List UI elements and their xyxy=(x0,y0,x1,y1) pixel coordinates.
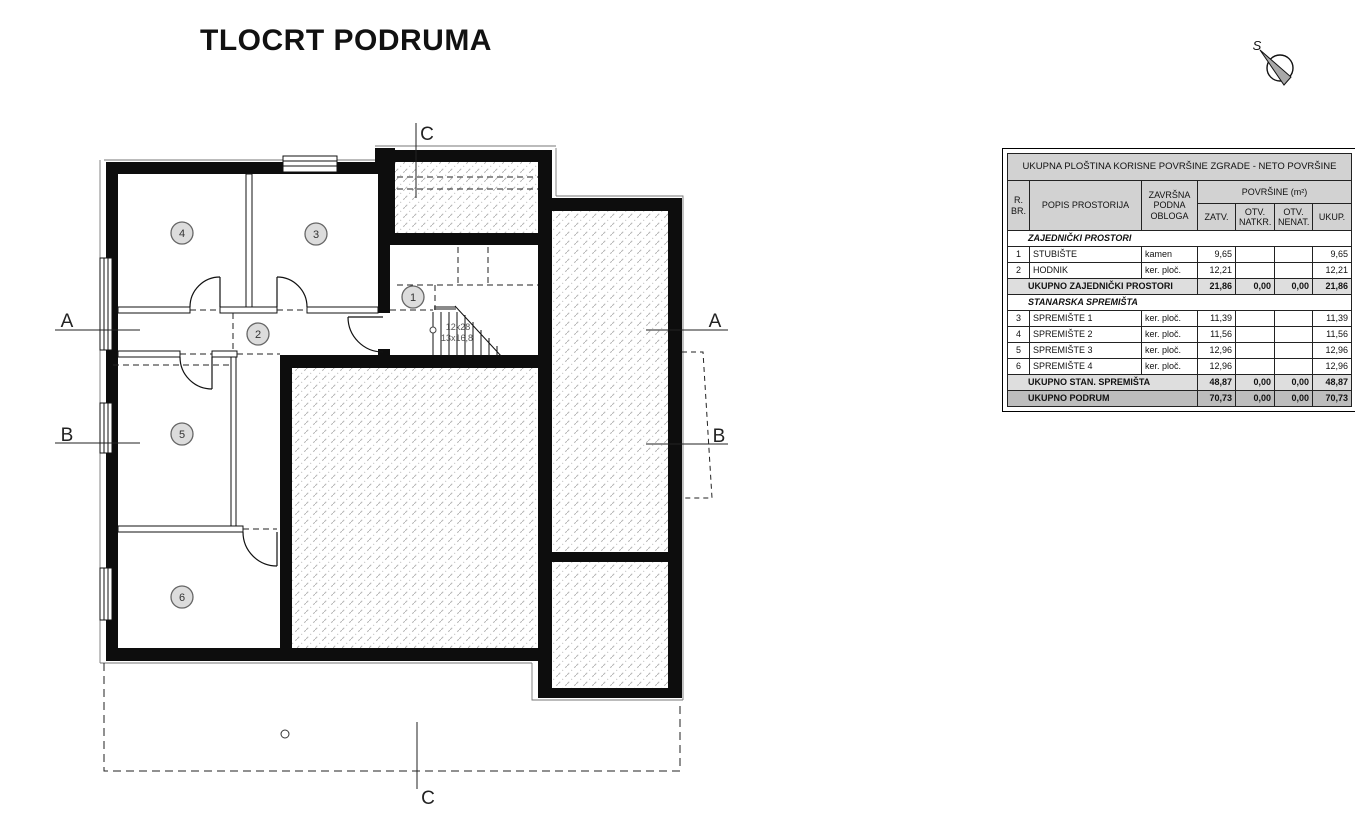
col-header-ukup: UKUP. xyxy=(1313,204,1352,231)
door-room5 xyxy=(180,357,212,389)
table-title: UKUPNA PLOŠTINA KORISNE POVRŠINE ZGRADE … xyxy=(1008,154,1352,181)
section-label-c-top: C xyxy=(420,124,434,145)
stair-landing-mark xyxy=(434,306,456,310)
window-left-1 xyxy=(100,258,112,350)
door-room4 xyxy=(190,277,220,307)
area-table: UKUPNA PLOŠTINA KORISNE POVRŠINE ZGRADE … xyxy=(1007,153,1352,407)
svg-text:6: 6 xyxy=(179,592,185,604)
stair-start-marker xyxy=(430,327,436,333)
room-marker-4: 4 xyxy=(171,222,193,244)
section-b-right-dashed xyxy=(682,352,712,498)
section-row: ZAJEDNIČKI PROSTORI xyxy=(1008,231,1352,247)
north-label: S xyxy=(1253,38,1262,53)
col-header-povrsine: POVRŠINE (m²) xyxy=(1198,181,1352,204)
table-row: 2 HODNIK ker. ploč. 12,21 12,21 xyxy=(1008,263,1352,279)
door-stair xyxy=(348,317,383,352)
drawing-sheet: TLOCRT PODRUMA xyxy=(0,0,1355,813)
door-room6 xyxy=(243,532,277,566)
right-hatch-lower xyxy=(552,562,668,688)
stair-note-2: 13x16,8 xyxy=(441,333,473,343)
ground-marker xyxy=(281,730,289,738)
table-row: 5 SPREMIŠTE 3 ker. ploč. 12,96 12,96 xyxy=(1008,343,1352,359)
window-left-3 xyxy=(100,568,112,620)
svg-text:4: 4 xyxy=(179,228,185,240)
col-header-zatv: ZATV. xyxy=(1198,204,1236,231)
svg-text:3: 3 xyxy=(313,229,319,241)
svg-text:2: 2 xyxy=(255,329,261,341)
north-arrow-icon: S xyxy=(1253,38,1293,85)
col-header-obloga: ZAVRŠNA PODNA OBLOGA xyxy=(1142,181,1198,231)
grand-total-row: UKUPNO PODRUM 70,73 0,00 0,00 70,73 xyxy=(1008,391,1352,407)
section-label-b-left: B xyxy=(61,425,74,446)
section-label-a-left: A xyxy=(61,311,74,332)
section-label-a-right: A xyxy=(709,311,722,332)
window-left-2 xyxy=(100,403,112,453)
col-header-natkr: OTV. NATKR. xyxy=(1236,204,1275,231)
table-row: 3 SPREMIŠTE 1 ker. ploč. 11,39 11,39 xyxy=(1008,311,1352,327)
right-hatch-upper xyxy=(552,211,668,552)
window-top xyxy=(283,156,337,172)
stair-note-1: 12x28 xyxy=(446,322,471,332)
room-marker-5: 5 xyxy=(171,423,193,445)
central-hatch xyxy=(292,368,538,648)
col-header-nenat: OTV. NENAT. xyxy=(1275,204,1313,231)
table-row: 6 SPREMIŠTE 4 ker. ploč. 12,96 12,96 xyxy=(1008,359,1352,375)
section-label-c-bottom: C xyxy=(421,788,435,809)
total-row: UKUPNO ZAJEDNIČKI PROSTORI 21,86 0,00 0,… xyxy=(1008,279,1352,295)
svg-text:1: 1 xyxy=(410,292,416,304)
col-header-popis: POPIS PROSTORIJA xyxy=(1030,181,1142,231)
room-marker-2: 2 xyxy=(247,323,269,345)
stairs: 12x28 13x16,8 xyxy=(430,306,502,357)
table-row: 4 SPREMIŠTE 2 ker. ploč. 11,56 11,56 xyxy=(1008,327,1352,343)
section-row: STANARSKA SPREMIŠTA xyxy=(1008,295,1352,311)
svg-text:5: 5 xyxy=(179,429,185,441)
room-marker-3: 3 xyxy=(305,223,327,245)
table-row: 1 STUBIŠTE kamen 9,65 9,65 xyxy=(1008,247,1352,263)
col-header-rbr: R. BR. xyxy=(1008,181,1030,231)
room-marker-6: 6 xyxy=(171,586,193,608)
total-row: UKUPNO STAN. SPREMIŠTA 48,87 0,00 0,00 4… xyxy=(1008,375,1352,391)
section-label-b-right: B xyxy=(713,426,726,447)
room-marker-1: 1 xyxy=(402,286,424,308)
door-room3 xyxy=(277,277,307,307)
area-table-block: UKUPNA PLOŠTINA KORISNE POVRŠINE ZGRADE … xyxy=(1002,148,1355,412)
